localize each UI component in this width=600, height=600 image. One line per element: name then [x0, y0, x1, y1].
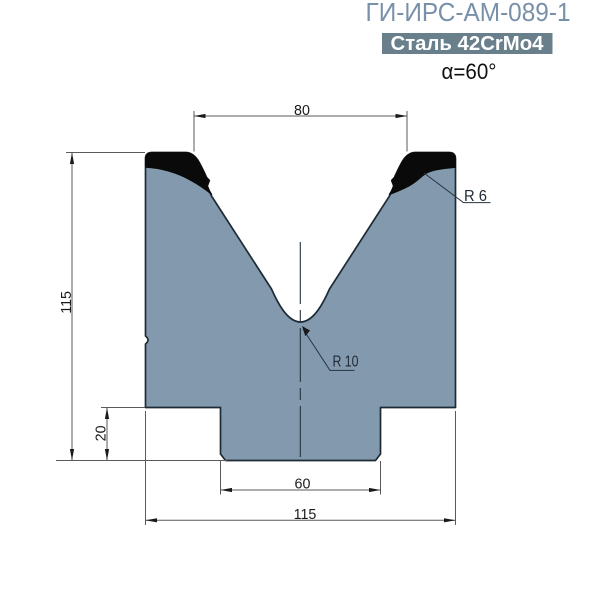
svg-text:R 6: R 6 [464, 188, 487, 205]
svg-text:20: 20 [94, 425, 110, 441]
svg-text:60: 60 [295, 476, 311, 492]
svg-text:80: 80 [294, 103, 310, 119]
svg-text:ГИ-ИРС-АМ-089-1: ГИ-ИРС-АМ-089-1 [366, 0, 571, 27]
svg-text:R 10: R 10 [333, 353, 359, 370]
svg-text:α=60°: α=60° [442, 59, 497, 84]
svg-text:115: 115 [59, 291, 75, 314]
svg-text:115: 115 [294, 507, 317, 523]
svg-text:Сталь 42CrMo4: Сталь 42CrMo4 [391, 32, 545, 55]
